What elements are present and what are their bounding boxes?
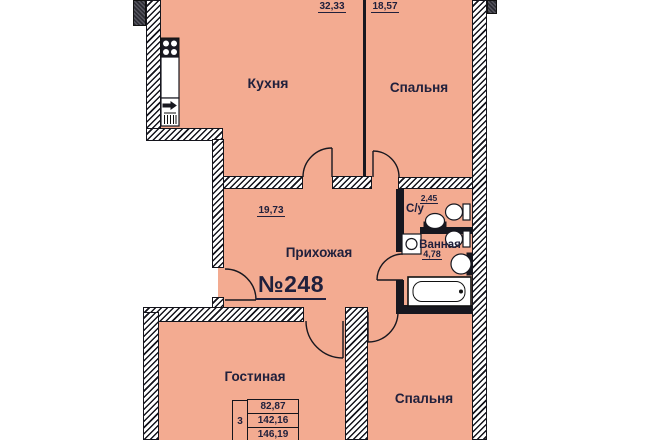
kitchen-sink-icon	[161, 98, 179, 126]
fixtures-layer	[0, 0, 650, 440]
kitchen-label: Кухня	[228, 76, 308, 91]
washbasin-icon	[424, 214, 446, 232]
stove-icon	[161, 38, 179, 57]
apartment-number: №248	[252, 272, 330, 297]
bedroom-top-label: Спальня	[381, 81, 457, 96]
living-room-label: Гостиная	[215, 370, 295, 385]
bathroom-door-arc-icon	[377, 254, 403, 280]
kitchen-counter-icon	[161, 57, 179, 98]
total-area-cell: 146,19	[247, 427, 299, 440]
wc-area-label: 2,45	[414, 194, 444, 203]
bedroom-bottom-label: Спальня	[385, 392, 463, 407]
living-room-door-arc-icon	[306, 321, 343, 358]
toilet-icon	[446, 204, 471, 220]
apartment-stamp-table: 3 82,87 142,16 146,19	[232, 400, 299, 440]
apartment-area-cell: 142,16	[247, 413, 299, 428]
bedroom-top-door-arc-icon	[373, 151, 399, 177]
hallway-area-label: 19,73	[252, 205, 290, 216]
wc-label: С/у	[400, 203, 430, 216]
living-area-cell: 82,87	[247, 399, 299, 414]
kitchen-area-label: 32,33	[313, 1, 351, 12]
kitchen-door-arc-icon	[303, 148, 332, 177]
bedroom-bottom-door-arc-icon	[368, 312, 398, 342]
floor-plan: 32,33 18,57 Кухня Спальня 19,73 Прихожая…	[0, 0, 650, 440]
bedroom-top-area-label: 18,57	[366, 1, 404, 12]
washbasin-icon	[451, 253, 472, 275]
bathroom-area-label: 4,78	[416, 250, 448, 260]
hallway-label: Прихожая	[280, 246, 358, 261]
bathtub-icon	[408, 277, 471, 306]
rooms-count-cell: 3	[232, 400, 248, 440]
